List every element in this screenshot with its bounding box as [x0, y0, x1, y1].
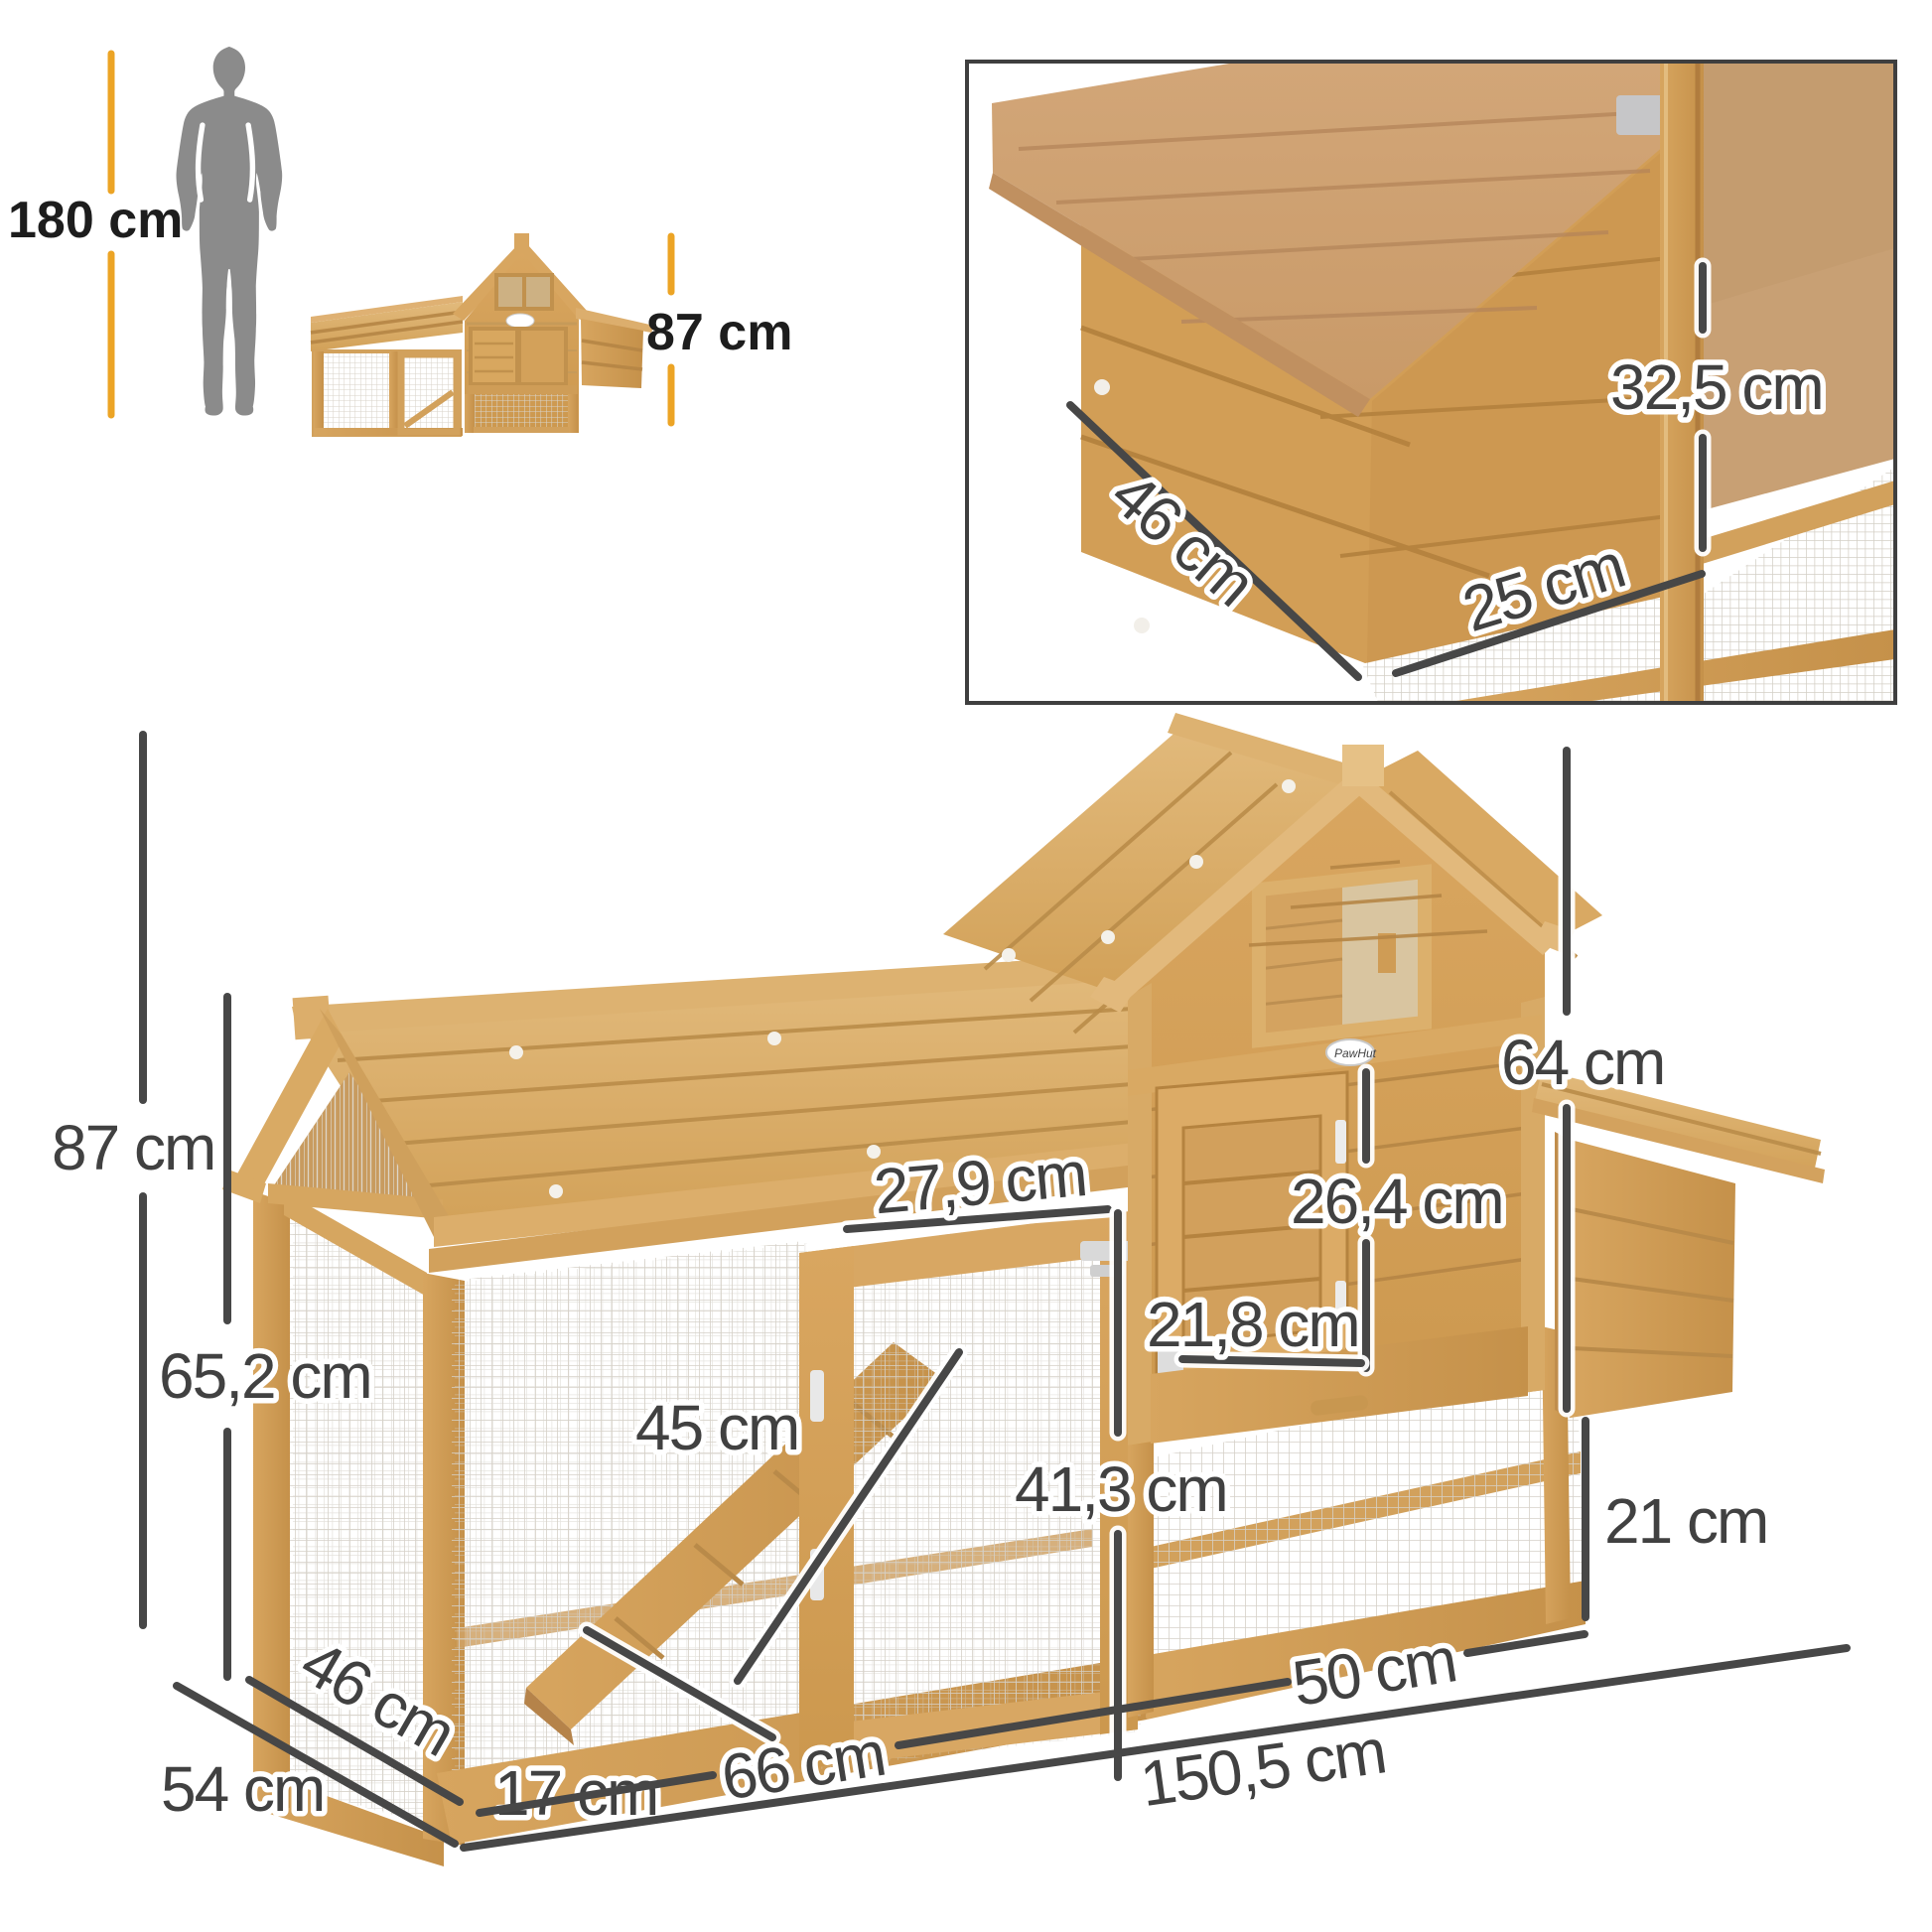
svg-text:21 cm: 21 cm	[1604, 1485, 1767, 1557]
svg-text:180 cm: 180 cm	[8, 192, 183, 249]
svg-text:PawHut: PawHut	[1334, 1046, 1377, 1060]
svg-text:87 cm: 87 cm	[646, 304, 792, 361]
svg-text:65,2 cm: 65,2 cm	[159, 1340, 371, 1412]
svg-text:45 cm: 45 cm	[635, 1392, 798, 1463]
svg-text:41,3 cm: 41,3 cm	[1015, 1453, 1227, 1525]
svg-text:26,4 cm: 26,4 cm	[1291, 1166, 1503, 1237]
svg-text:21,8 cm: 21,8 cm	[1147, 1289, 1359, 1360]
svg-text:32,5 cm: 32,5 cm	[1610, 351, 1823, 423]
svg-text:87 cm: 87 cm	[52, 1112, 214, 1183]
svg-text:54 cm: 54 cm	[161, 1753, 324, 1825]
svg-text:17 cm: 17 cm	[494, 1757, 657, 1829]
svg-text:64 cm: 64 cm	[1501, 1027, 1664, 1098]
